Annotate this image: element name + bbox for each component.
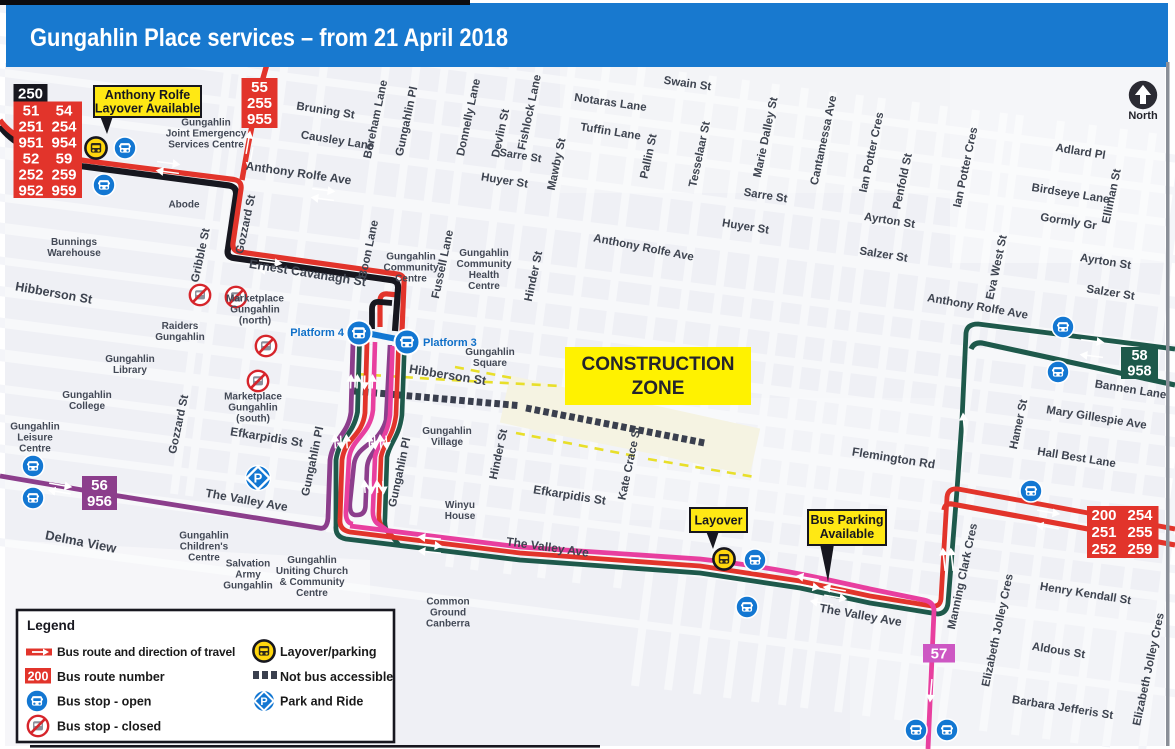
svg-text:Abode: Abode xyxy=(168,200,200,211)
svg-text:254: 254 xyxy=(1127,507,1153,524)
svg-text:Gungahlin: Gungahlin xyxy=(230,305,279,316)
svg-text:Bunnings: Bunnings xyxy=(51,237,98,248)
svg-text:Ground: Ground xyxy=(430,608,466,619)
svg-text:59: 59 xyxy=(56,151,73,168)
svg-text:Marketplace: Marketplace xyxy=(226,294,284,305)
svg-text:& Community: & Community xyxy=(280,577,345,588)
svg-text:Gungahlin Place services – fro: Gungahlin Place services – from 21 April… xyxy=(30,24,508,52)
svg-text:259: 259 xyxy=(51,167,76,184)
svg-text:Park and Ride: Park and Ride xyxy=(280,695,363,709)
svg-text:Joint Emergency: Joint Emergency xyxy=(166,129,247,140)
svg-text:Marketplace: Marketplace xyxy=(224,392,282,403)
svg-text:Layover/parking: Layover/parking xyxy=(280,645,377,659)
svg-text:Gungahlin: Gungahlin xyxy=(155,332,204,343)
svg-text:956: 956 xyxy=(87,493,112,510)
svg-text:255: 255 xyxy=(1127,524,1152,541)
svg-text:Village: Village xyxy=(431,437,463,448)
svg-text:Salvation: Salvation xyxy=(226,559,270,570)
svg-text:Available: Available xyxy=(820,527,874,541)
svg-text:Bus route and direction of tra: Bus route and direction of travel xyxy=(57,645,235,659)
svg-text:959: 959 xyxy=(51,183,76,200)
svg-text:ZONE: ZONE xyxy=(632,378,685,399)
svg-text:Raiders: Raiders xyxy=(162,321,199,332)
svg-text:52: 52 xyxy=(23,151,40,168)
svg-text:Bus route number: Bus route number xyxy=(57,670,165,684)
svg-text:Uniting Church: Uniting Church xyxy=(276,566,348,577)
svg-text:(north): (north) xyxy=(239,316,271,327)
svg-text:54: 54 xyxy=(56,103,73,120)
svg-text:Warehouse: Warehouse xyxy=(47,248,101,259)
svg-text:Gungahlin: Gungahlin xyxy=(228,403,277,414)
svg-text:254: 254 xyxy=(51,119,77,136)
svg-text:251: 251 xyxy=(18,119,43,136)
svg-text:Layover Available: Layover Available xyxy=(95,102,200,116)
svg-text:Centre: Centre xyxy=(395,274,427,285)
svg-text:Bus stop - open: Bus stop - open xyxy=(57,695,151,709)
svg-text:250: 250 xyxy=(18,86,43,103)
svg-text:58: 58 xyxy=(1131,348,1147,364)
svg-text:200: 200 xyxy=(1091,507,1116,524)
svg-text:Army: Army xyxy=(235,570,261,581)
svg-text:Gungahlin: Gungahlin xyxy=(459,248,508,259)
svg-text:55: 55 xyxy=(251,79,268,96)
svg-text:CONSTRUCTION: CONSTRUCTION xyxy=(581,354,734,375)
svg-text:Gungahlin: Gungahlin xyxy=(465,347,514,358)
svg-text:259: 259 xyxy=(1127,541,1152,558)
svg-text:954: 954 xyxy=(51,135,77,152)
svg-text:Gungahlin: Gungahlin xyxy=(105,354,154,365)
svg-text:Gungahlin: Gungahlin xyxy=(10,422,59,433)
svg-text:951: 951 xyxy=(18,135,43,152)
svg-text:Community: Community xyxy=(384,263,439,274)
svg-text:Not bus accessible: Not bus accessible xyxy=(280,670,393,684)
svg-text:Square: Square xyxy=(473,358,507,369)
svg-text:Legend: Legend xyxy=(27,618,75,633)
svg-text:(south): (south) xyxy=(236,414,270,425)
svg-text:Gungahlin: Gungahlin xyxy=(287,555,336,566)
svg-text:Community: Community xyxy=(457,259,512,270)
svg-text:56: 56 xyxy=(91,477,108,494)
svg-text:Children's: Children's xyxy=(180,542,229,553)
svg-text:Centre: Centre xyxy=(296,588,328,599)
svg-text:North: North xyxy=(1128,110,1158,122)
svg-text:200: 200 xyxy=(28,670,49,684)
svg-text:Health: Health xyxy=(469,270,500,281)
svg-text:Winyu: Winyu xyxy=(445,500,475,511)
svg-text:House: House xyxy=(445,511,476,522)
svg-text:952: 952 xyxy=(18,183,43,200)
svg-text:Gungahlin: Gungahlin xyxy=(62,390,111,401)
svg-text:Gungahlin: Gungahlin xyxy=(223,581,272,592)
svg-text:College: College xyxy=(69,401,106,412)
svg-text:255: 255 xyxy=(247,95,272,112)
svg-text:Platform 4: Platform 4 xyxy=(290,327,345,339)
svg-text:Leisure: Leisure xyxy=(17,433,53,444)
svg-text:Centre: Centre xyxy=(19,444,51,455)
svg-text:251: 251 xyxy=(1091,524,1116,541)
svg-text:Layover: Layover xyxy=(695,514,743,528)
svg-text:Gungahlin: Gungahlin xyxy=(422,426,471,437)
svg-text:Gungahlin: Gungahlin xyxy=(179,531,228,542)
svg-text:Anthony Rolfe: Anthony Rolfe xyxy=(105,88,190,102)
svg-text:Gungahlin: Gungahlin xyxy=(386,252,435,263)
svg-text:955: 955 xyxy=(247,111,272,128)
svg-text:958: 958 xyxy=(1127,364,1151,380)
svg-text:Bus stop - closed: Bus stop - closed xyxy=(57,720,161,734)
svg-text:Canberra: Canberra xyxy=(426,619,470,630)
svg-text:Gungahlin: Gungahlin xyxy=(181,118,230,129)
svg-text:Common: Common xyxy=(426,597,469,608)
svg-text:252: 252 xyxy=(18,167,43,184)
svg-text:Centre: Centre xyxy=(188,553,220,564)
svg-text:Library: Library xyxy=(113,365,147,376)
svg-text:51: 51 xyxy=(23,103,40,120)
svg-text:Bus Parking: Bus Parking xyxy=(811,513,884,527)
svg-text:Centre: Centre xyxy=(468,281,500,292)
svg-text:Services Centre: Services Centre xyxy=(168,140,244,151)
svg-text:57: 57 xyxy=(931,646,948,663)
svg-text:252: 252 xyxy=(1091,541,1116,558)
